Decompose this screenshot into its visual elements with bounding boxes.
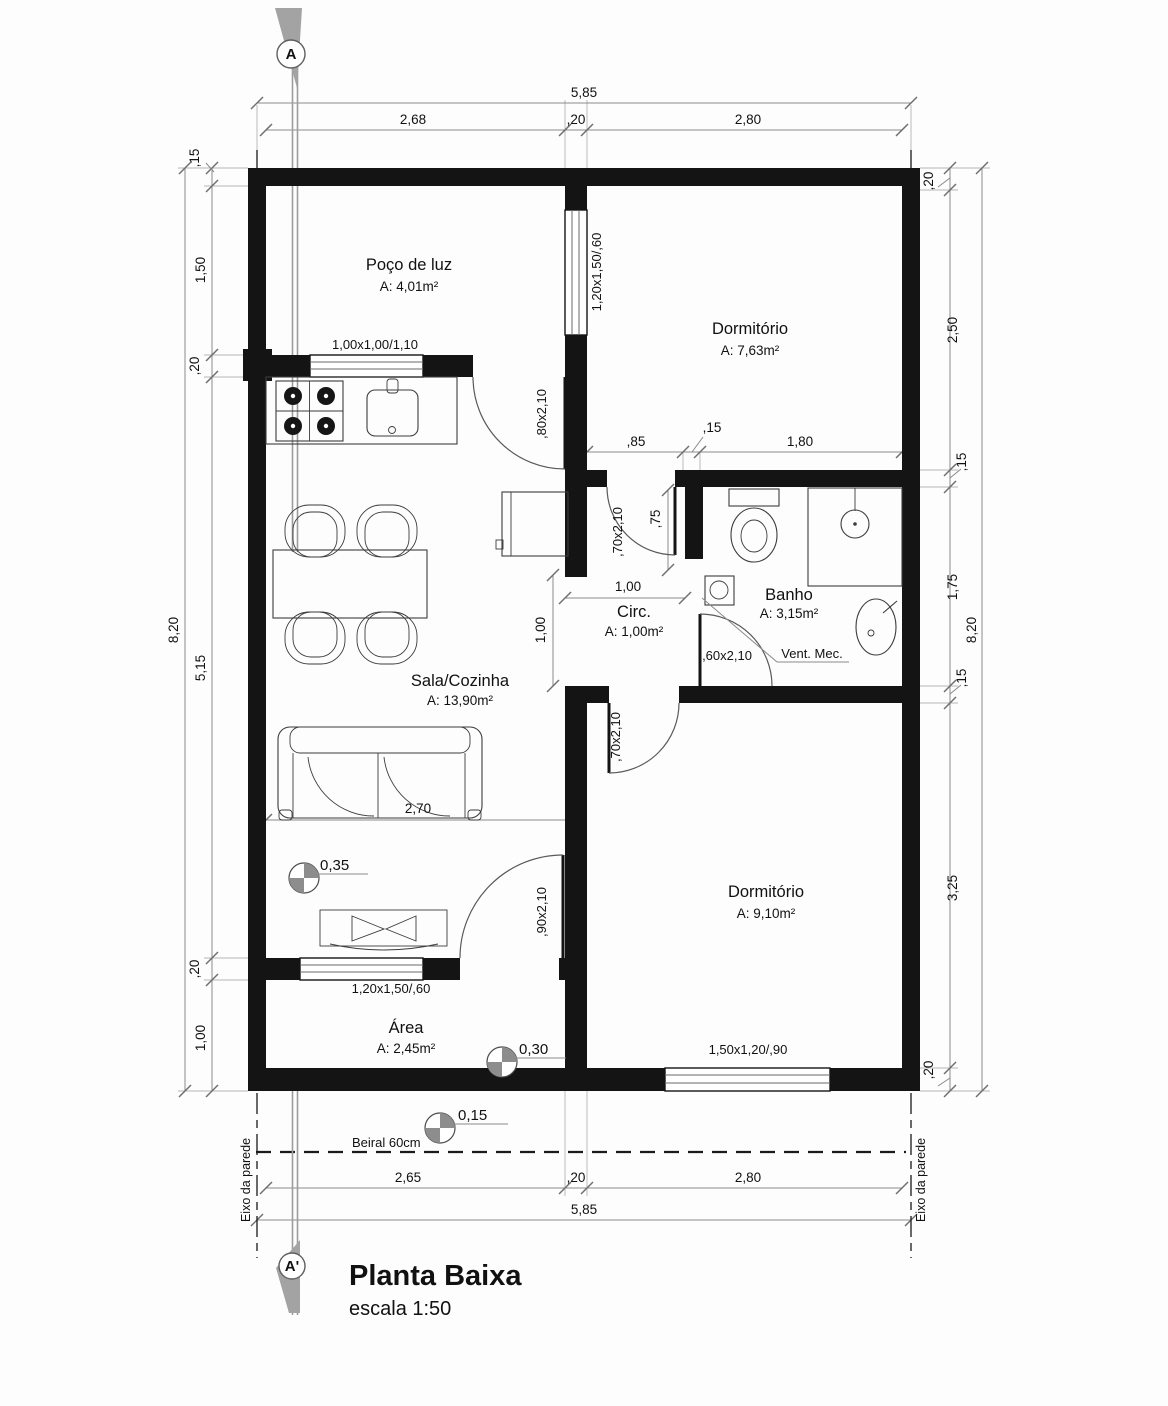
kitchen-door xyxy=(473,377,565,469)
dim-right-3: ,15 xyxy=(954,453,969,472)
kitchen-sink xyxy=(367,379,418,436)
wall-right xyxy=(902,168,920,1091)
level-sala: 0,35 xyxy=(320,857,349,874)
room-banho-name: Banho xyxy=(765,586,813,604)
drawing-scale: escala 1:50 xyxy=(349,1298,451,1320)
wall-kitchen-a xyxy=(266,355,310,377)
poco-dorm-window xyxy=(565,210,587,335)
dim-right-4: 1,75 xyxy=(945,574,960,600)
level-exterior: 0,15 xyxy=(458,1107,487,1124)
room-poco-name: Poço de luz xyxy=(366,256,452,274)
room-area-area: A: 2,45m² xyxy=(377,1041,436,1056)
dim-bottom-1: 2,65 xyxy=(395,1170,421,1185)
section-label-bottom: A' xyxy=(285,1258,299,1275)
room-area-name: Área xyxy=(389,1018,425,1037)
label-dorm2-door: ,70x2,10 xyxy=(608,712,623,762)
room-circ-area: A: 1,00m² xyxy=(605,624,664,639)
chair xyxy=(285,505,345,557)
dim-right-2: 2,50 xyxy=(945,317,960,343)
label-eixo-left: Eixo da parede xyxy=(239,1138,253,1222)
dim-left-3: ,20 xyxy=(187,357,202,376)
wall-area-b xyxy=(423,958,460,980)
dim-left-2: 1,50 xyxy=(193,257,208,283)
dim-right-total: 8,20 xyxy=(964,617,979,643)
room-circ-name: Circ. xyxy=(617,603,651,621)
wall-central-top xyxy=(565,168,587,210)
floor-plan-drawing: A A' xyxy=(0,0,1168,1406)
label-kitchen-window: 1,00x1,00/1,10 xyxy=(332,337,418,352)
room-dorm2-area: A: 9,10m² xyxy=(737,906,796,921)
doors xyxy=(460,377,772,958)
wall-banho-top-a xyxy=(565,470,607,487)
dim-right-1: ,20 xyxy=(921,172,936,191)
room-dorm2-name: Dormitório xyxy=(728,883,804,901)
dim-bottom-3: 2,80 xyxy=(735,1170,761,1185)
dim-door-swing: ,75 xyxy=(648,510,663,529)
toilet xyxy=(729,489,779,562)
dim-banho-1: ,85 xyxy=(627,434,646,449)
dim-left-total: 8,20 xyxy=(166,617,181,643)
dorm2-window xyxy=(665,1068,830,1091)
kitchen-counter xyxy=(266,377,457,444)
wall-bottom-right xyxy=(830,1068,920,1091)
label-area-window: 1,20x1,50/,60 xyxy=(352,981,431,996)
dim-bottom-total: 5,85 xyxy=(571,1202,597,1217)
dim-right-7: ,20 xyxy=(921,1061,936,1080)
dim-circ-w: 1,00 xyxy=(615,579,641,594)
section-label-top: A xyxy=(286,46,297,63)
cabinet xyxy=(496,492,568,556)
section-line-top: A xyxy=(275,8,305,552)
dim-top-2: ,20 xyxy=(567,112,586,127)
section-line-bottom: A' xyxy=(276,1085,305,1315)
table xyxy=(273,550,427,618)
room-dorm1-area: A: 7,63m² xyxy=(721,343,780,358)
stove xyxy=(276,381,343,441)
label-kitchen-door: ,80x2,10 xyxy=(534,389,549,439)
room-sala-area: A: 13,90m² xyxy=(427,693,494,708)
wall-area-a xyxy=(266,958,300,980)
wall-area-jamb xyxy=(559,958,587,980)
kitchen-window xyxy=(310,355,423,377)
dim-banho-3: 1,80 xyxy=(787,434,813,449)
label-poco-dorm-window: 1,20x1,50/,60 xyxy=(589,233,604,312)
dim-sala-width: 2,70 xyxy=(405,801,431,816)
label-dorm1-door: ,70x2,10 xyxy=(610,507,625,557)
sofa-back xyxy=(290,727,470,753)
dim-circ-h: 1,00 xyxy=(533,617,548,643)
wall-dorm2-corner xyxy=(565,686,609,703)
chair xyxy=(357,612,417,664)
drawing-title: Planta Baixa xyxy=(349,1260,522,1292)
tv-rack xyxy=(320,910,447,950)
dim-left-6: 1,00 xyxy=(193,1025,208,1051)
shower xyxy=(808,488,902,586)
wall-banho-top-b xyxy=(675,470,902,487)
room-sala-name: Sala/Cozinha xyxy=(411,672,510,690)
dim-banho-2: ,15 xyxy=(703,420,722,435)
dim-top-total: 5,85 xyxy=(571,85,597,100)
label-dorm2-window: 1,50x1,20/,90 xyxy=(709,1042,788,1057)
room-poco-area: A: 4,01m² xyxy=(380,279,439,294)
bathroom-fixtures xyxy=(702,488,902,662)
level-area: 0,30 xyxy=(519,1041,548,1058)
label-vent-mec: Vent. Mec. xyxy=(781,646,842,661)
room-dorm1-name: Dormitório xyxy=(712,320,788,338)
dim-right-5: ,15 xyxy=(954,669,969,688)
dim-bottom-2: ,20 xyxy=(567,1170,586,1185)
chair xyxy=(285,612,345,664)
dining-set xyxy=(273,505,427,664)
wall-banho-bottom xyxy=(679,686,902,703)
wall-kitchen-b xyxy=(423,355,473,377)
washing-machine xyxy=(705,576,734,605)
label-eixo-right: Eixo da parede xyxy=(914,1138,928,1222)
wall-banho-left xyxy=(685,487,703,559)
label-banho-door: ,60x2,10 xyxy=(702,648,752,663)
dim-top-3: 2,80 xyxy=(735,112,761,127)
wall-left xyxy=(248,168,266,1091)
area-window xyxy=(300,958,423,980)
dim-left-5: ,20 xyxy=(187,960,202,979)
lavatory-sink xyxy=(856,599,897,655)
dim-left-1: ,15 xyxy=(187,149,202,168)
wall-central-low xyxy=(565,686,587,1091)
title-block: Planta Baixa escala 1:50 xyxy=(349,1260,522,1320)
room-banho-area: A: 3,15m² xyxy=(760,606,819,621)
dim-right-6: 3,25 xyxy=(945,875,960,901)
dim-top-1: 2,68 xyxy=(400,112,426,127)
chair xyxy=(357,505,417,557)
sofa xyxy=(278,727,482,820)
label-area-door: ,90x2,10 xyxy=(534,887,549,937)
wall-bottom-left xyxy=(248,1068,665,1091)
label-beiral: Beiral 60cm xyxy=(352,1135,421,1150)
floor-plan-page: A A' xyxy=(0,0,1168,1406)
dim-left-4: 5,15 xyxy=(193,655,208,681)
